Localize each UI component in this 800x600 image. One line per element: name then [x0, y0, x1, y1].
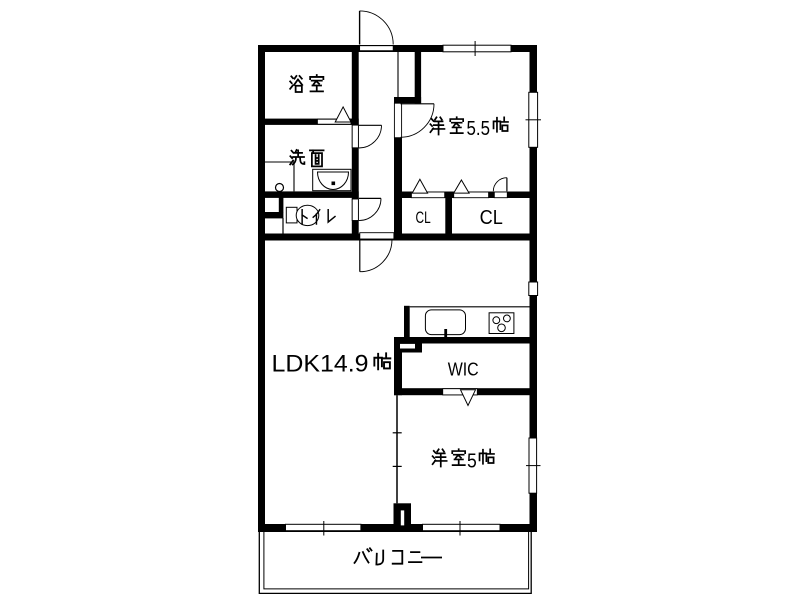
svg-text:WIC: WIC — [448, 359, 479, 379]
svg-text:5.5: 5.5 — [467, 118, 491, 140]
svg-text:CL: CL — [416, 208, 431, 227]
svg-text:CL: CL — [480, 206, 503, 229]
svg-text:5: 5 — [467, 451, 477, 473]
svg-text:LDK14.9: LDK14.9 — [272, 351, 369, 378]
